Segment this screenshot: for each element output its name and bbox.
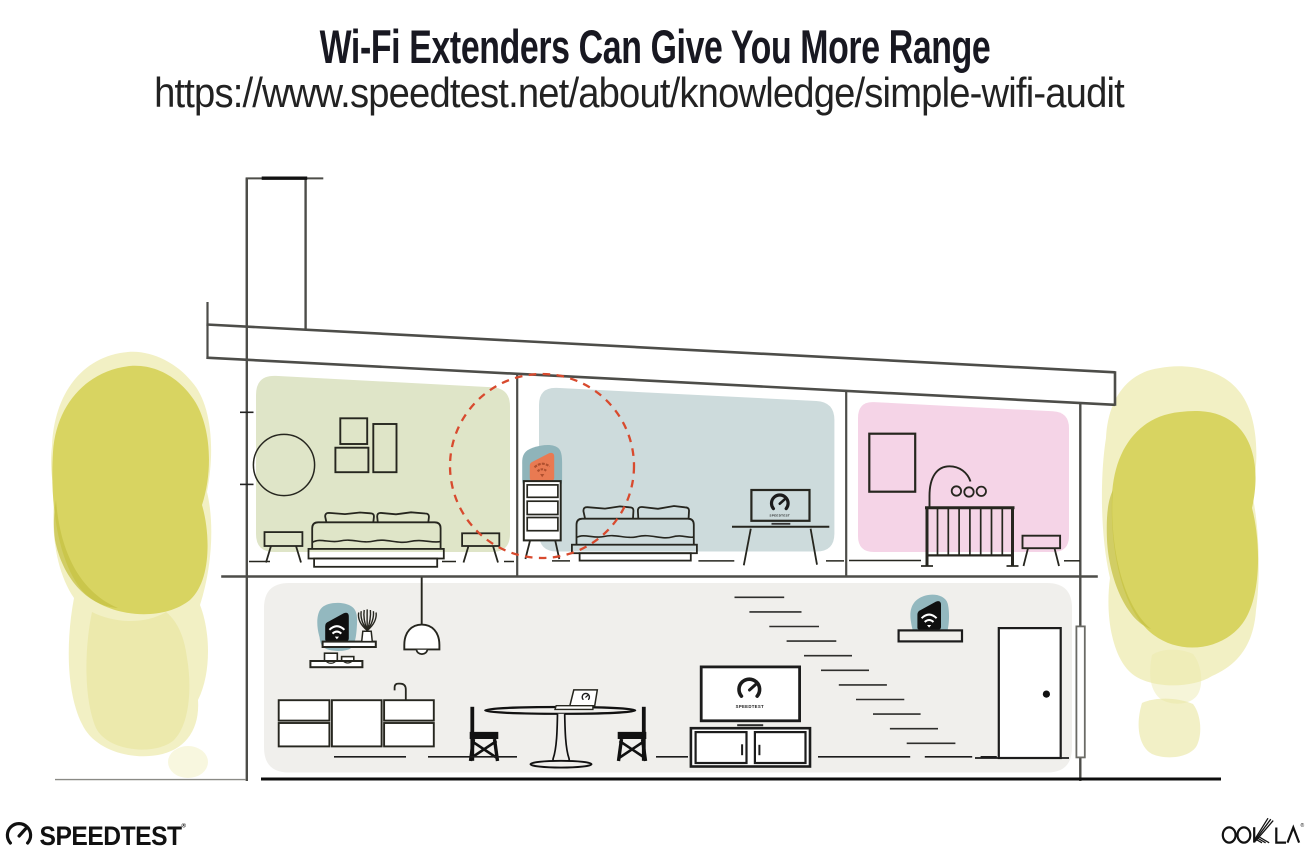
svg-text:SPEEDTEST: SPEEDTEST bbox=[770, 513, 791, 517]
svg-text:SPEEDTEST: SPEEDTEST bbox=[736, 704, 764, 709]
svg-text:®: ® bbox=[182, 823, 187, 830]
svg-text:®: ® bbox=[1301, 822, 1305, 829]
svg-text:SPEEDTEST: SPEEDTEST bbox=[40, 822, 183, 851]
